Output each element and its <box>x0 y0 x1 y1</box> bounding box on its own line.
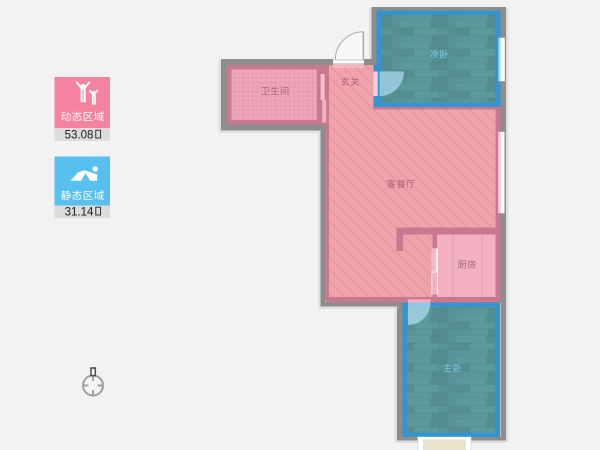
svg-text:31.14: 31.14 <box>65 206 94 218</box>
svg-text:53.08: 53.08 <box>65 130 94 142</box>
